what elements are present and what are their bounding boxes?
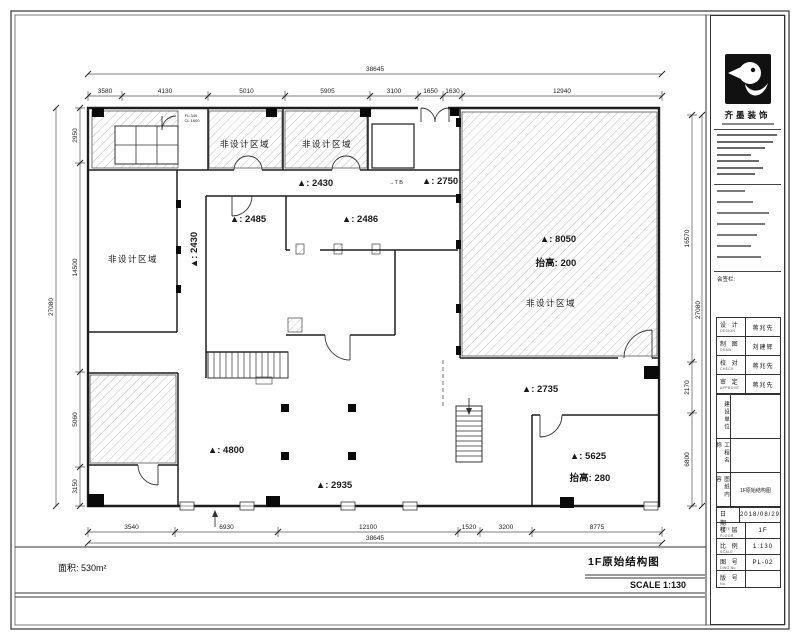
row-value: 1F	[746, 523, 780, 538]
room-annotation: ▲: 5625	[570, 451, 607, 462]
room-annotation: ▲: 2750	[422, 176, 458, 187]
dim-label: 5010	[239, 88, 254, 95]
room-annotation: ▲: 8050	[540, 234, 576, 245]
room-annotation: ▲: 2485	[230, 214, 267, 225]
dim-total-label: 27080	[695, 301, 702, 319]
elevator-grid	[115, 126, 178, 164]
dim-label: 6930	[219, 524, 234, 531]
sign-section-label: 会签栏:	[717, 275, 735, 283]
approval-table: 设 计DESIGN 蒋兆先 制 图DRAW 刘建辉 校 对CHECK 蒋兆先 审…	[716, 317, 781, 395]
room-annotation: 非设计区域	[108, 254, 158, 264]
row-sublabel: APPROVE	[720, 386, 745, 390]
table-row: 校 对CHECK 蒋兆先	[717, 356, 780, 375]
room-annotation: CL:1600	[184, 118, 200, 123]
dimension-tick	[53, 105, 83, 509]
contact-text-lines	[717, 134, 777, 180]
dim-label: 3100	[387, 88, 402, 95]
row-label: 楼 层	[720, 525, 745, 534]
divider	[714, 129, 781, 130]
row-label: 制 图	[720, 339, 745, 348]
company-logo	[725, 54, 771, 104]
dimension-line	[56, 108, 85, 506]
row-label: 图 号	[720, 557, 745, 566]
sheet-frame	[11, 11, 789, 629]
row-value: 2018/08/29	[740, 507, 780, 522]
table-row: 制 图DRAW 刘建辉	[717, 337, 780, 356]
room-annotation: 抬高: 200	[536, 257, 577, 269]
row-value	[746, 571, 780, 587]
row-sublabel: DRAW	[720, 348, 745, 352]
table-row: 设 计DESIGN 蒋兆先	[717, 318, 780, 337]
dim-label: 8775	[590, 524, 605, 531]
company-tagline	[722, 123, 774, 125]
table-row: 图 号DWG.No PL-02	[717, 555, 780, 571]
entry-arrow	[212, 510, 218, 527]
row-value	[731, 394, 780, 438]
dim-label: 3150	[72, 479, 79, 494]
dim-label: 3580	[98, 88, 113, 95]
room-annotation: ▲: 4800	[208, 445, 244, 456]
area-label: 面积: 530m²	[58, 561, 107, 574]
meta-table: 日 期DATE 2018/08/29 楼 层FLOOR 1F 比 例SCALE …	[716, 506, 781, 588]
row-label: 校 对	[720, 358, 745, 367]
dim-label: 1520	[462, 524, 477, 531]
row-value: 蒋兆先	[746, 375, 780, 394]
small-room	[372, 124, 414, 168]
row-label: 设 计	[720, 320, 745, 329]
room-annotation: ▲: 2430	[189, 232, 200, 268]
table-row: 建设单位	[717, 394, 780, 439]
dim-label: 2950	[72, 128, 79, 143]
room-annotation: ▲: 2735	[522, 384, 559, 395]
row-value	[731, 439, 780, 472]
dim-label: 12940	[553, 88, 571, 95]
table-row: 比 例SCALE 1:130	[717, 539, 780, 555]
row-sublabel: DWG.No	[720, 566, 745, 570]
table-row: 工程名称	[717, 439, 780, 473]
room-annotation: ▲: 2430	[297, 178, 333, 189]
row-sublabel: DESIGN	[720, 329, 745, 333]
row-label: 图纸内容	[717, 473, 731, 507]
company-name: 齐墨装饰	[711, 109, 784, 121]
dim-total-label: 38645	[366, 66, 384, 73]
row-label: 建设单位	[717, 394, 731, 438]
row-label: 工程名称	[717, 439, 731, 472]
row-sublabel: CHECK	[720, 367, 745, 371]
table-row: 楼 层FLOOR 1F	[717, 523, 780, 539]
room-annotation: 非设计区域	[302, 139, 352, 149]
table-row: 版 号No.	[717, 571, 780, 587]
dim-total-label: 38645	[366, 535, 384, 542]
dim-total-label: 27080	[48, 298, 55, 316]
dim-label: 2170	[684, 380, 691, 395]
cad-sheet: 非设计区域非设计区域非设计区域▲: 2430▲: 2430▲: 2750▲: 2…	[0, 0, 800, 640]
room-annotation: 非设计区域	[526, 298, 576, 308]
room-annotation: 非设计区域	[220, 139, 270, 149]
dim-label: 3200	[499, 524, 514, 531]
dim-label: 5060	[72, 412, 79, 427]
notes-text-lines	[717, 190, 769, 267]
room-annotation: →T B	[389, 180, 403, 186]
room-annotation: 抬高: 280	[570, 472, 611, 484]
dim-label: 3540	[124, 524, 139, 531]
row-value: 1:130	[746, 539, 780, 554]
dim-label: 1650	[423, 88, 438, 95]
dim-label: 1630	[445, 88, 460, 95]
row-sublabel: SCALE	[720, 550, 745, 554]
row-value: 蒋兆先	[746, 318, 780, 336]
title-block: 齐墨装饰 会签栏: 设 计DESIGN 蒋兆先 制 图DRAW 刘建辉 校 对C…	[710, 15, 785, 625]
row-label: 比 例	[720, 541, 745, 550]
drawing-title-label: 1F原始结构图	[588, 554, 660, 569]
floor-plan-drawing: 非设计区域非设计区域非设计区域▲: 2430▲: 2430▲: 2750▲: 2…	[0, 0, 800, 640]
dimension-line	[88, 74, 662, 101]
row-value: 1F原始结构图	[731, 473, 780, 507]
dim-label: 16570	[684, 229, 691, 247]
row-value: 刘建辉	[746, 337, 780, 355]
room-annotation: ▲: 2935	[316, 480, 353, 491]
dim-label: 6800	[684, 452, 691, 467]
row-value: PL-02	[746, 555, 780, 570]
dim-label: 14500	[72, 258, 79, 276]
table-row: 图纸内容 1F原始结构图	[717, 473, 780, 507]
dim-label: 12100	[359, 524, 377, 531]
divider	[714, 184, 781, 185]
stairs	[208, 352, 482, 462]
divider	[714, 271, 781, 272]
room-annotation: ▲: 2486	[342, 214, 378, 225]
project-info-table: 建设单位 工程名称 图纸内容 1F原始结构图	[716, 393, 781, 508]
row-value: 蒋兆先	[746, 356, 780, 374]
row-label: 审 定	[720, 377, 745, 386]
dim-label: 4130	[158, 88, 173, 95]
dim-label: 5905	[320, 88, 335, 95]
table-row: 日 期DATE 2018/08/29	[717, 507, 780, 523]
row-label: 版 号	[720, 573, 745, 582]
scale-label: SCALE 1:130	[630, 580, 686, 590]
table-row: 审 定APPROVE 蒋兆先	[717, 375, 780, 394]
row-sublabel: No.	[720, 582, 745, 586]
row-sublabel: FLOOR	[720, 534, 745, 538]
